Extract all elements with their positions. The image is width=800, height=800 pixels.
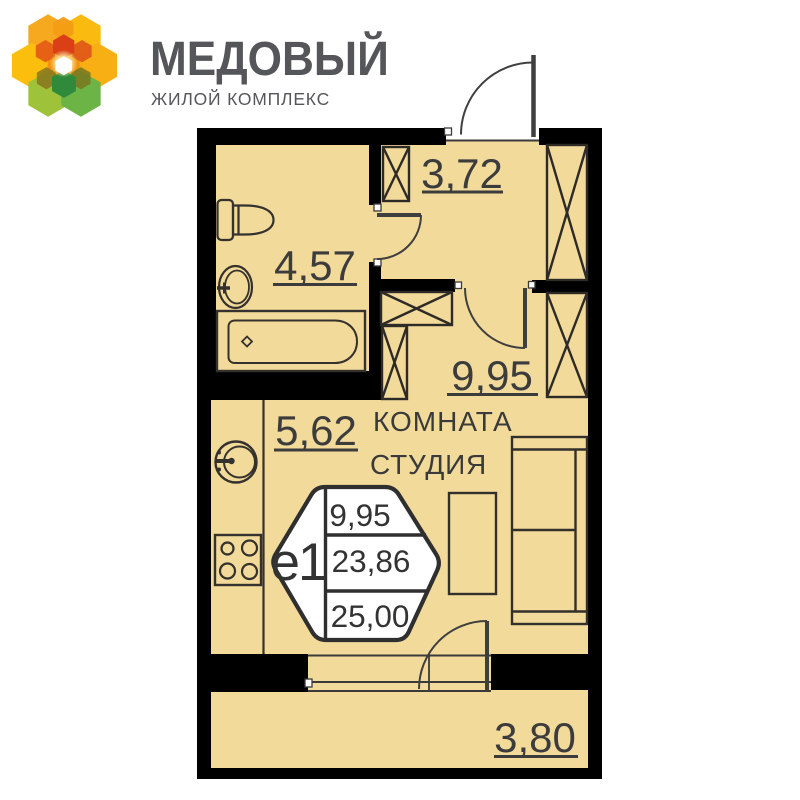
- svg-text:КОМНАТА: КОМНАТА: [373, 406, 513, 437]
- svg-text:25,00: 25,00: [331, 598, 410, 634]
- svg-text:23,86: 23,86: [332, 543, 411, 579]
- svg-text:МЕДОВЫЙ: МЕДОВЫЙ: [150, 31, 389, 85]
- svg-text:4,57: 4,57: [274, 242, 356, 289]
- svg-text:СТУДИЯ: СТУДИЯ: [370, 449, 487, 480]
- svg-text:3,72: 3,72: [421, 150, 503, 197]
- svg-text:5,62: 5,62: [275, 407, 357, 454]
- svg-text:ЖИЛОЙ КОМПЛЕКС: ЖИЛОЙ КОМПЛЕКС: [151, 88, 330, 109]
- svg-text:9,95: 9,95: [329, 497, 390, 533]
- svg-text:9,95: 9,95: [451, 352, 533, 399]
- svg-text:3,80: 3,80: [494, 714, 576, 761]
- svg-text:е1: е1: [271, 533, 326, 592]
